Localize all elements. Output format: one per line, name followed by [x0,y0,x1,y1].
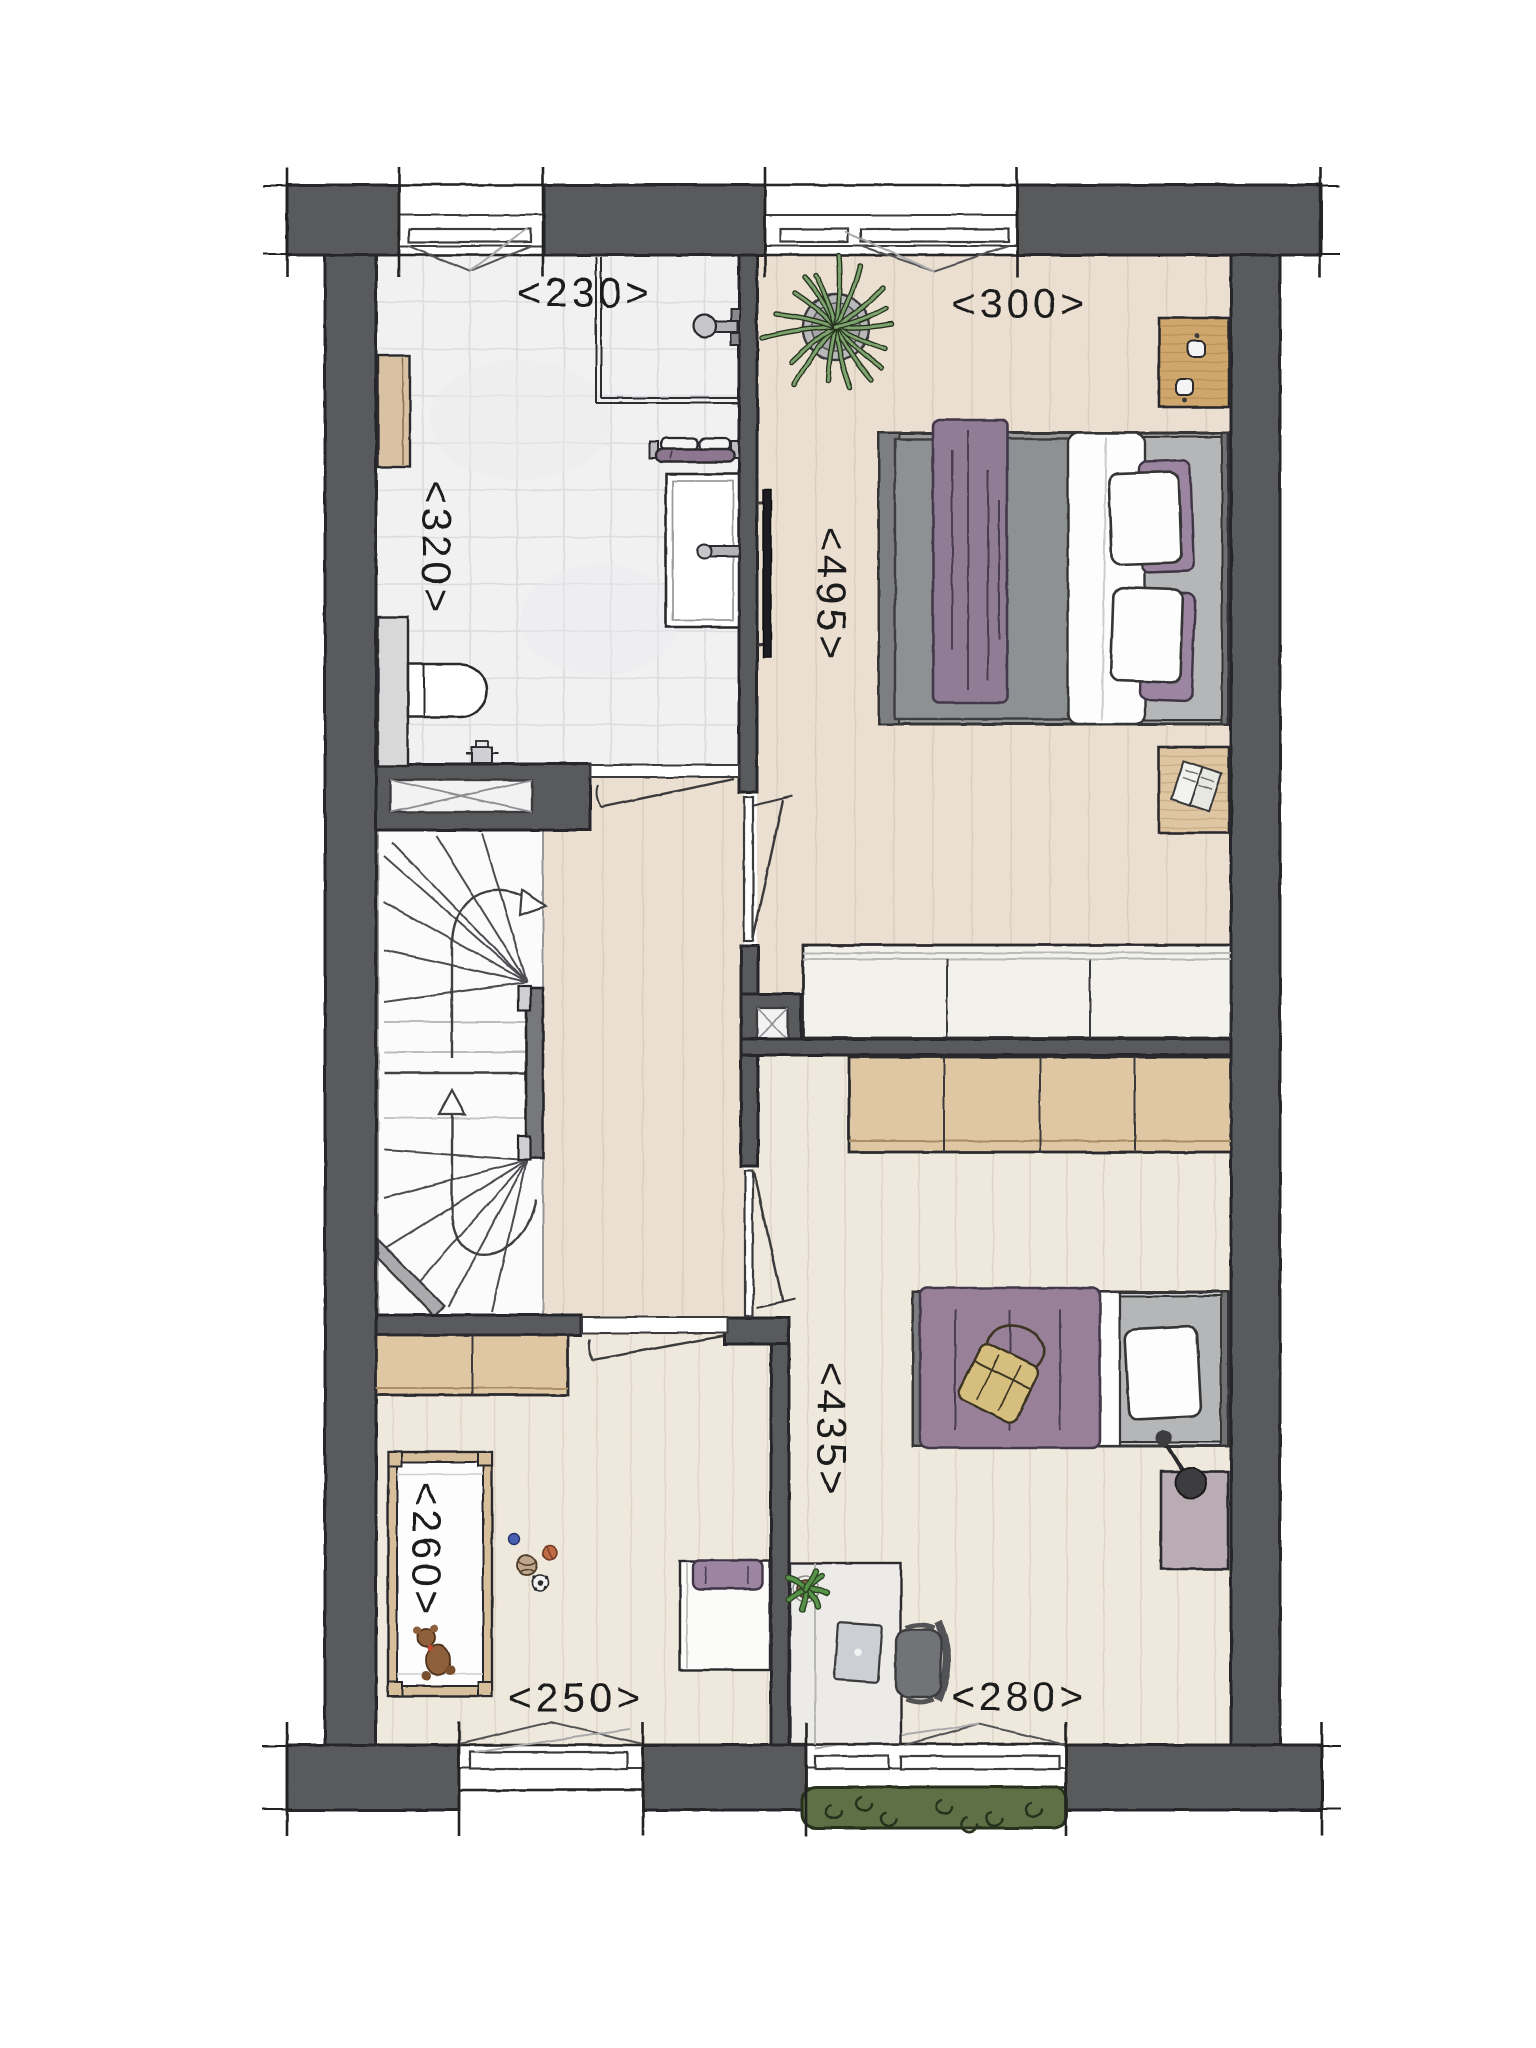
svg-text:<300>: <300> [952,280,1088,326]
svg-text:<495>: <495> [809,527,855,663]
svg-text:<320>: <320> [414,480,460,616]
svg-text:<280>: <280> [951,1673,1087,1719]
svg-text:<435>: <435> [809,1362,855,1498]
svg-text:<260>: <260> [404,1482,450,1618]
svg-text:<250>: <250> [508,1674,644,1720]
svg-text:<230>: <230> [517,269,653,315]
